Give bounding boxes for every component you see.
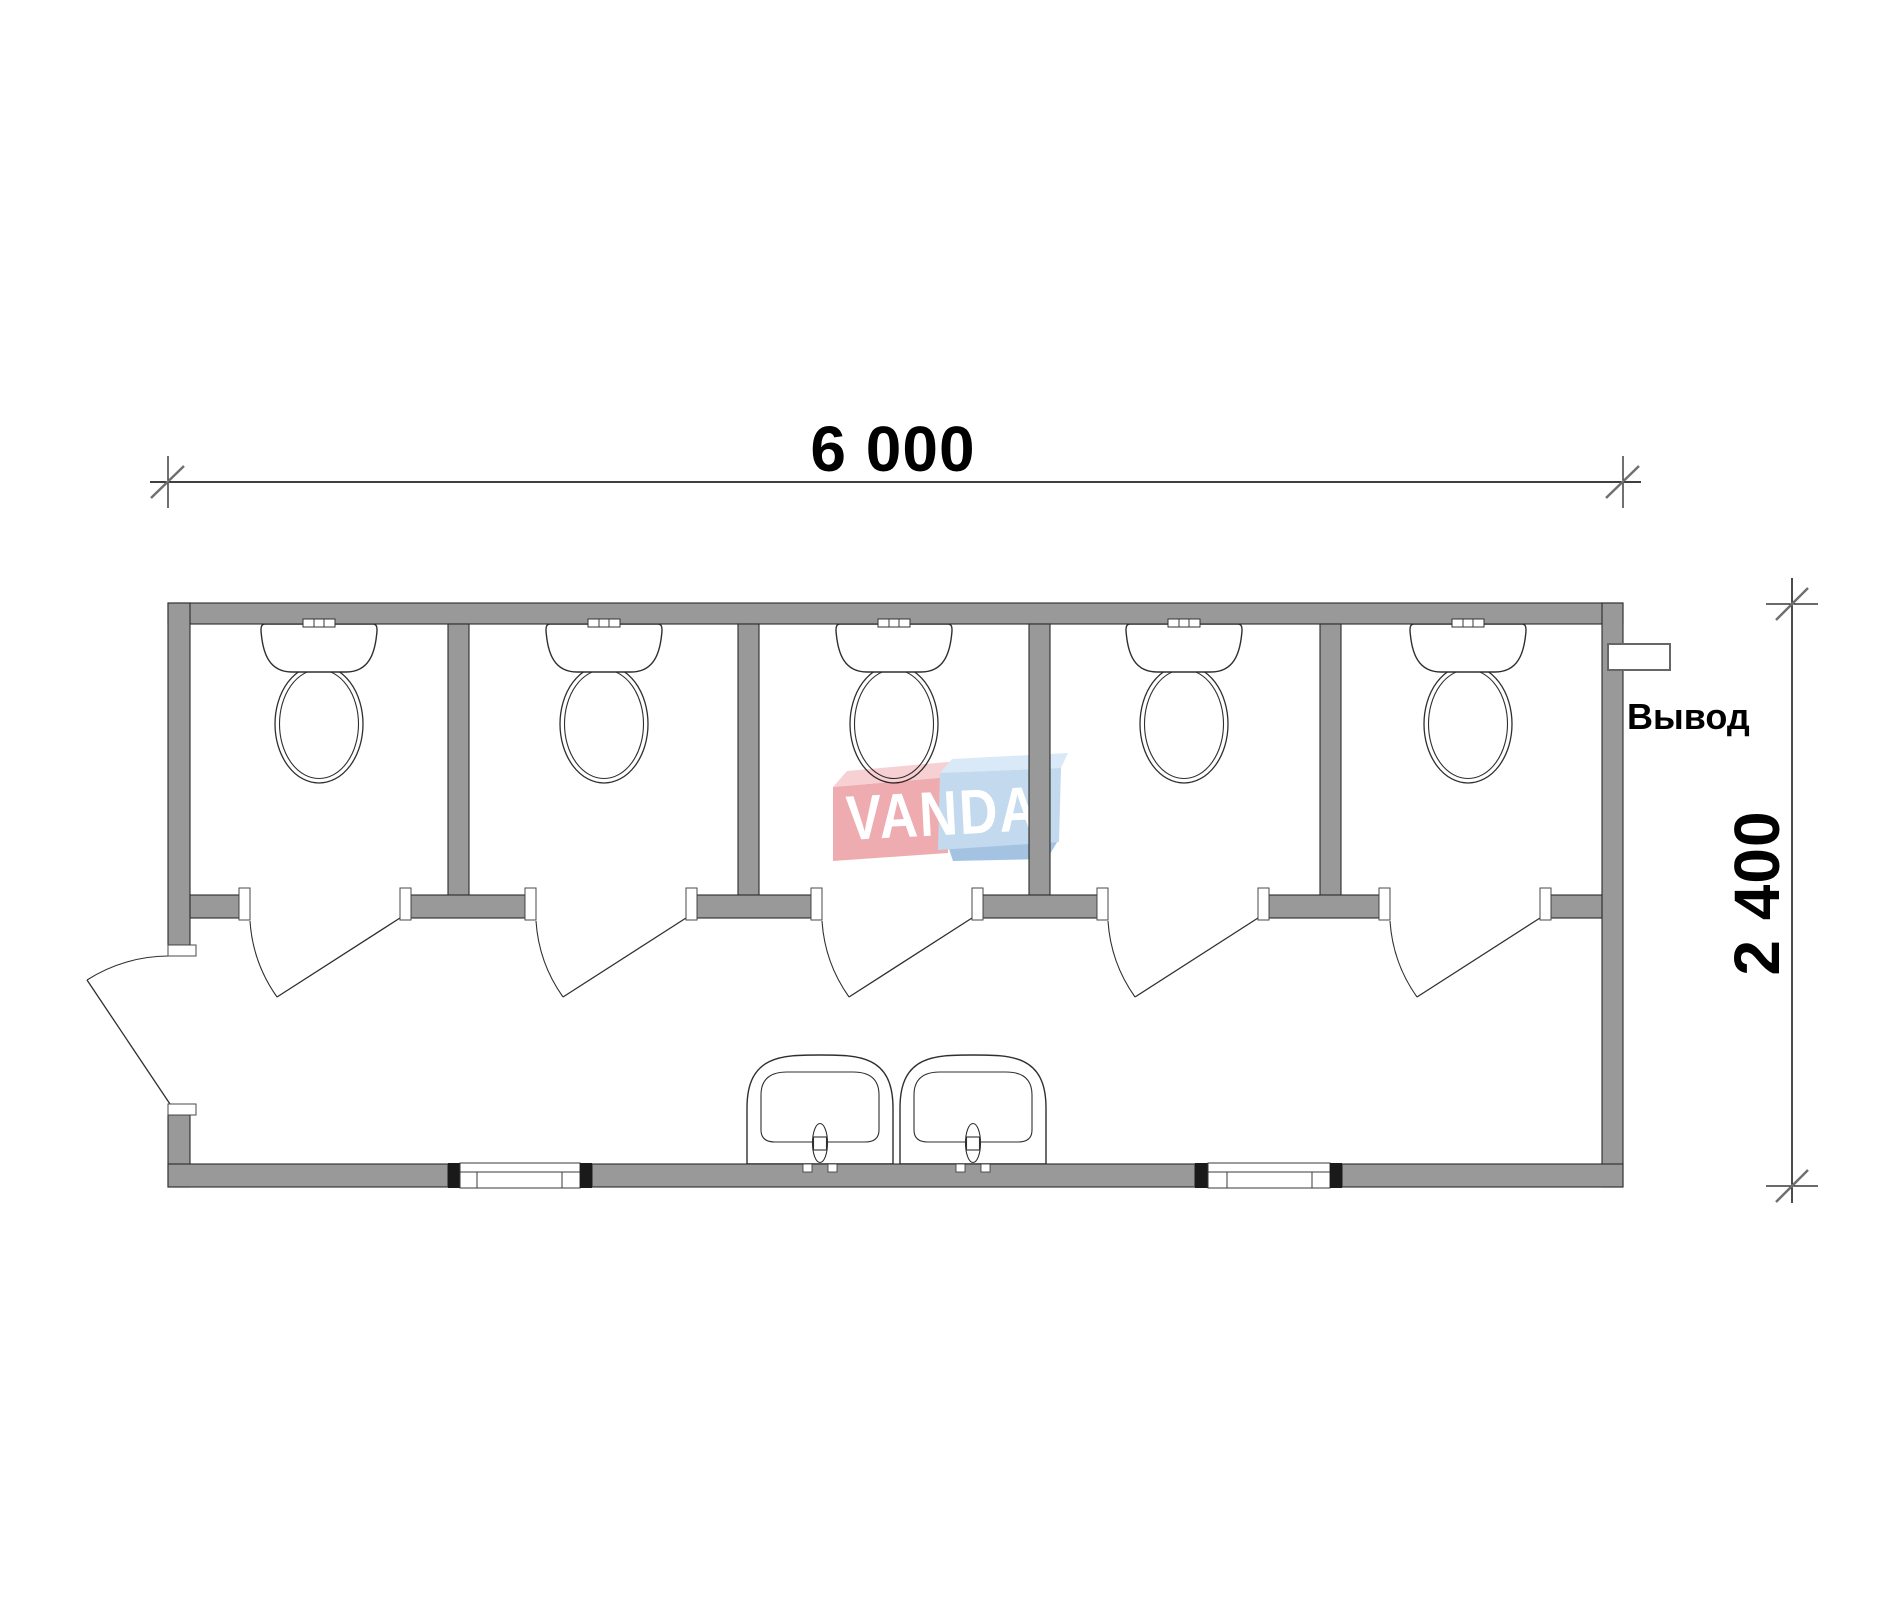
sink-1 (747, 1055, 893, 1164)
utility-outlet: Вывод (1608, 644, 1750, 737)
flush-button-1 (303, 619, 335, 627)
stall-door-4 (1108, 918, 1258, 997)
partition-2 (738, 624, 759, 896)
stall-front-wall-2 (411, 895, 525, 918)
dimension-vertical: 2 400 (1721, 578, 1818, 1203)
wall-left-upper (168, 603, 190, 945)
window-1 (448, 1163, 592, 1188)
stall-door-1 (250, 918, 400, 997)
dimension-horizontal: 6 000 (150, 413, 1641, 508)
dimension-height-label: 2 400 (1721, 810, 1793, 975)
stall-door-3 (822, 918, 972, 997)
stall-door-2 (536, 918, 686, 997)
dimension-width-label: 6 000 (810, 413, 975, 485)
window-2 (1195, 1163, 1342, 1188)
flush-button-3 (878, 619, 910, 627)
floor-plan-drawing: 6 000 2 400 VANDA (0, 0, 1899, 1617)
flush-button-4 (1168, 619, 1200, 627)
stall-front-wall-3 (697, 895, 811, 918)
watermark-text: VANDA (844, 774, 1040, 854)
flush-button-5 (1452, 619, 1484, 627)
partition-3 (1029, 624, 1050, 896)
toilet-3 (836, 624, 952, 783)
wall-bottom-middle (592, 1164, 1195, 1187)
partition-1 (448, 624, 469, 896)
wall-bottom-right (1342, 1164, 1623, 1187)
outlet-pipe (1608, 644, 1670, 670)
stall-front-wall-4 (983, 895, 1097, 918)
toilet-2 (546, 624, 662, 783)
stall-front-wall-1 (190, 895, 239, 918)
flush-button-2 (588, 619, 620, 627)
entrance-door (87, 956, 174, 1110)
entrance-jamb-top (168, 945, 196, 956)
partition-4 (1320, 624, 1341, 896)
stall-front-wall-6 (1551, 895, 1602, 918)
stall-front-wall-5 (1269, 895, 1379, 918)
floor-plan-canvas: 6 000 2 400 VANDA (0, 0, 1899, 1617)
wall-bottom-left (168, 1164, 448, 1187)
sink-2 (900, 1055, 1046, 1164)
toilet-5 (1410, 624, 1526, 783)
entrance-jamb-bottom (168, 1104, 196, 1115)
toilet-4 (1126, 624, 1242, 783)
outlet-label: Вывод (1627, 696, 1750, 737)
stall-door-5 (1390, 918, 1540, 997)
wall-right (1602, 603, 1623, 1187)
toilet-1 (261, 624, 377, 783)
